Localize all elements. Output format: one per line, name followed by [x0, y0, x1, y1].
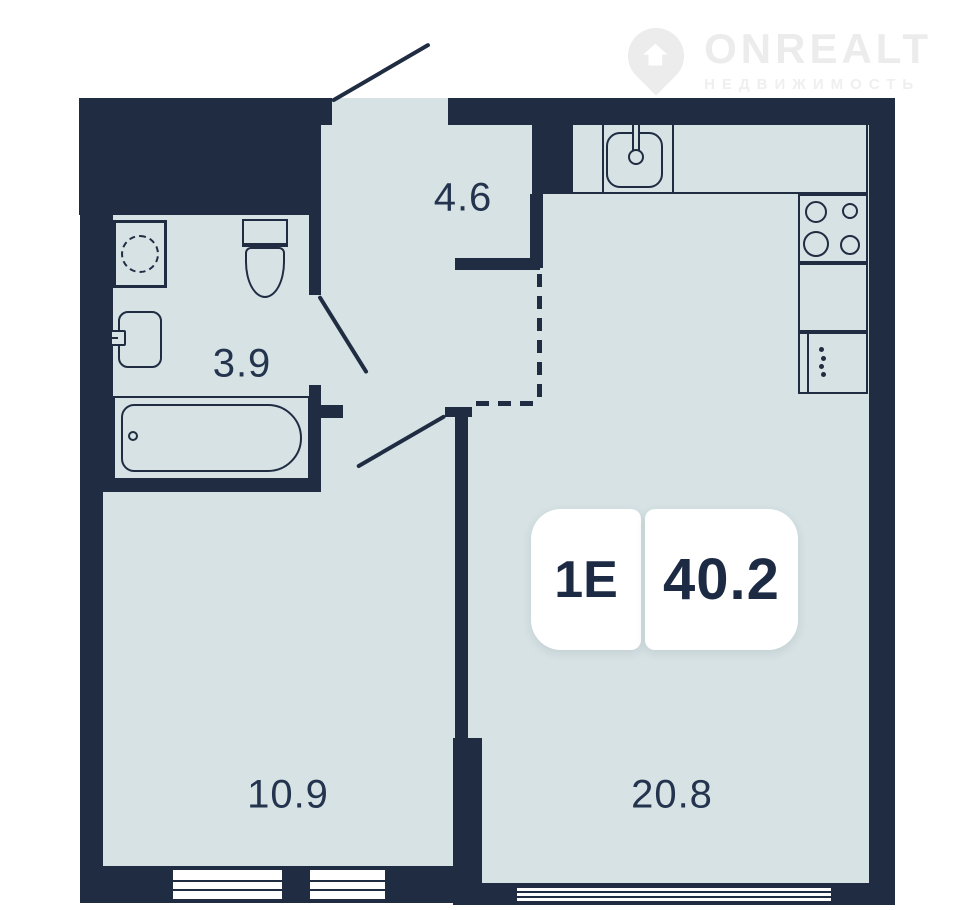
bathtub-drain — [128, 431, 138, 441]
wall — [321, 405, 343, 418]
wall — [530, 194, 543, 268]
wall — [321, 98, 332, 125]
house-icon — [638, 38, 672, 72]
kitchen-faucet-base — [628, 149, 644, 165]
logo-subtitle-text: НЕДВИЖИМОСТЬ — [704, 76, 920, 93]
zone-boundary-dashed — [537, 274, 542, 402]
burner — [805, 201, 827, 223]
zone-boundary-dashed — [476, 401, 540, 406]
wall-right — [869, 98, 895, 905]
burner — [803, 231, 829, 257]
wall — [309, 215, 321, 295]
window — [171, 868, 284, 901]
apartment-type-badge: 1Е — [531, 509, 641, 650]
wall — [445, 407, 472, 417]
wall — [309, 385, 321, 492]
wall — [448, 98, 895, 125]
floorplan-canvas: ONREALT НЕДВИЖИМОСТЬ — [0, 0, 960, 910]
wall — [103, 478, 321, 492]
map-pin-icon — [624, 24, 688, 96]
wall — [455, 258, 540, 270]
wall-bedroom-divider — [455, 417, 468, 738]
duct-shaft — [532, 98, 571, 194]
bedroom-area-label: 10.9 — [247, 773, 329, 818]
logo-brand-text: ONREALT — [704, 28, 932, 70]
fridge-fixture — [798, 332, 868, 394]
living-kitchen-area-label: 20.8 — [631, 773, 713, 818]
toilet-tank — [242, 219, 288, 245]
entrance-door-swing — [331, 42, 431, 102]
apartment-area-badge: 40.2 — [645, 509, 798, 650]
washing-machine-drum — [121, 235, 159, 273]
burner — [840, 235, 860, 255]
bathtub-fixture — [121, 404, 302, 472]
window — [308, 868, 387, 901]
wall — [103, 215, 113, 492]
stove-fixture — [798, 194, 868, 263]
burner — [842, 203, 858, 219]
wall-left — [80, 98, 103, 866]
wall — [79, 98, 321, 215]
onrealt-logo: ONREALT НЕДВИЖИМОСТЬ — [624, 24, 932, 96]
bathroom-area-label: 3.9 — [213, 342, 272, 387]
kitchen-cabinet-fixture — [798, 263, 868, 332]
window-panoramic — [515, 886, 833, 903]
hallway-area-label: 4.6 — [434, 176, 493, 221]
